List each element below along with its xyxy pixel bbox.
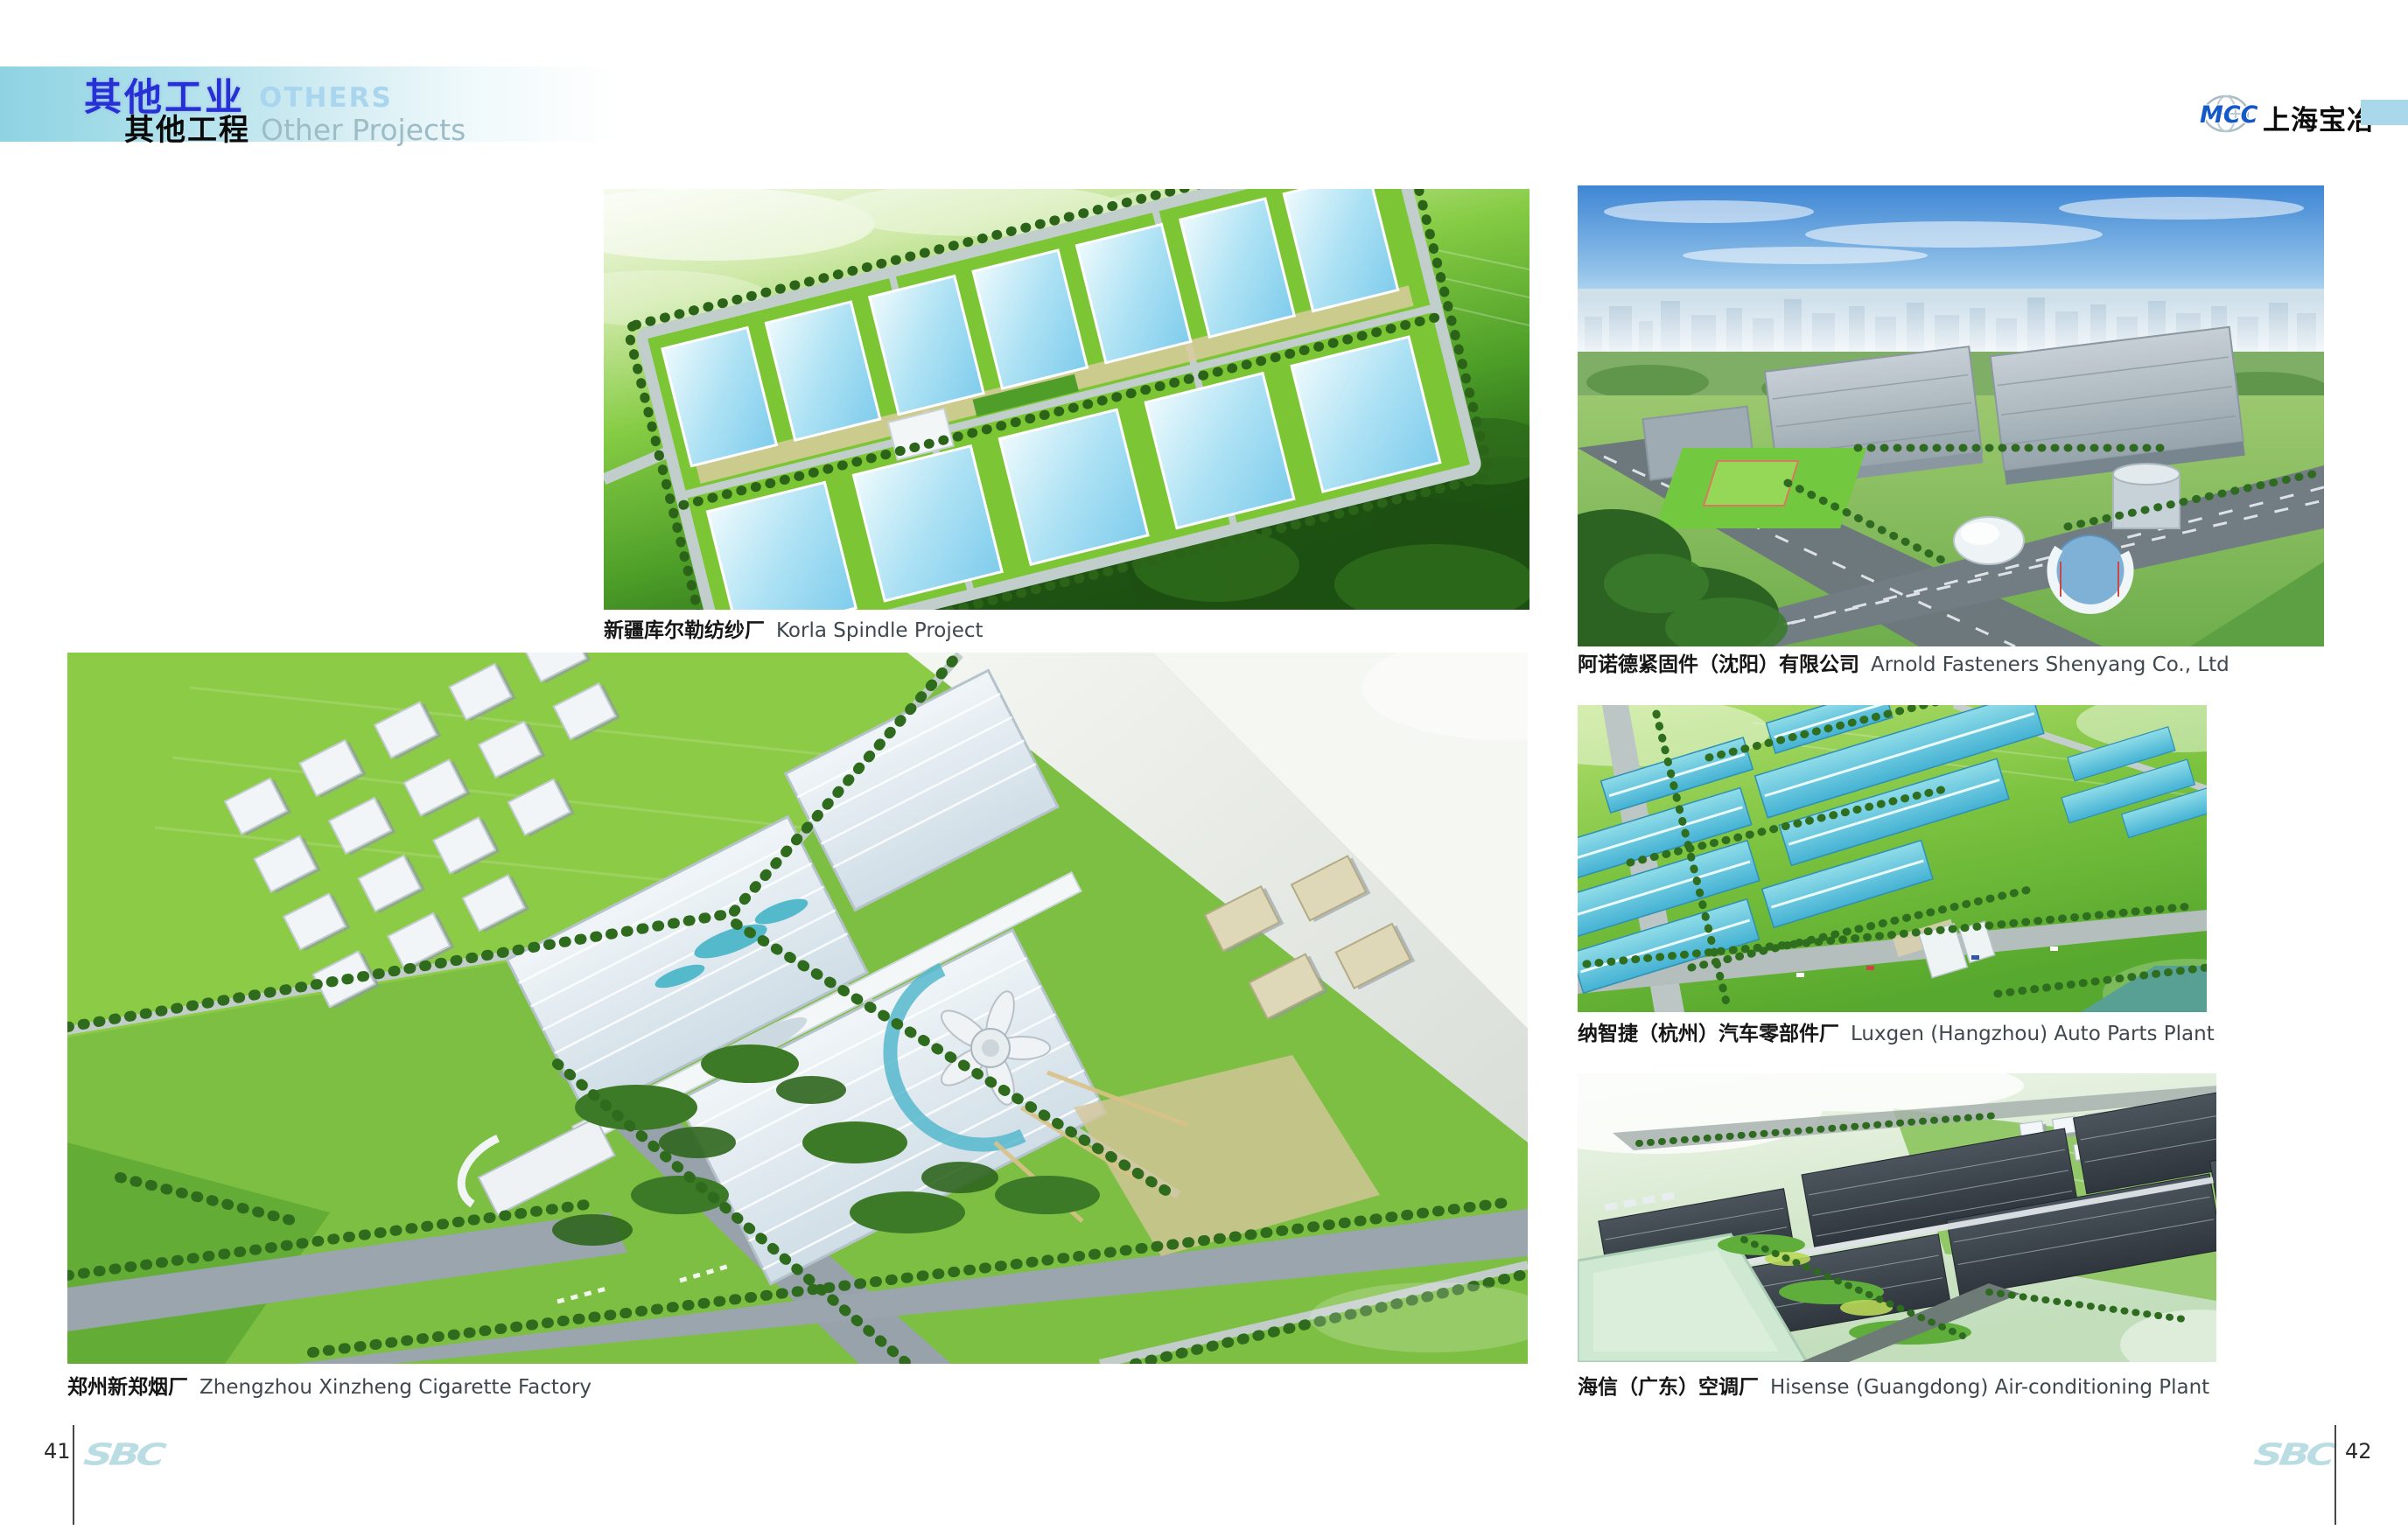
- figure-korla-spindle: [604, 189, 1529, 610]
- mcc-logo-text: MCC: [2200, 101, 2258, 129]
- caption-en: Hisense (Guangdong) Air-conditioning Pla…: [1770, 1376, 2209, 1399]
- footer-rule-right: [2334, 1425, 2336, 1525]
- page-number-right: 42: [2345, 1439, 2372, 1464]
- caption-en: Luxgen (Hangzhou) Auto Parts Plant: [1851, 1023, 2215, 1045]
- caption-en: Arnold Fasteners Shenyang Co., Ltd: [1871, 653, 2229, 676]
- figure-zhengzhou-cigarette: [67, 653, 1528, 1364]
- sbc-logo-left: SBC: [81, 1436, 164, 1471]
- arnold-aerial-render: [1578, 185, 2324, 646]
- figure-arnold-fasteners: [1578, 185, 2324, 646]
- caption-luxgen: 纳智捷（杭州）汽车零部件厂Luxgen (Hangzhou) Auto Part…: [1578, 1022, 2215, 1046]
- footer-rule-left: [73, 1425, 74, 1525]
- luxgen-aerial-render: [1578, 705, 2207, 1012]
- hisense-aerial-render: [1578, 1073, 2216, 1362]
- caption-arnold: 阿诺德紧固件（沈阳）有限公司Arnold Fasteners Shenyang …: [1578, 653, 2229, 677]
- korla-aerial-render: [604, 189, 1529, 610]
- caption-zh: 海信（广东）空调厂: [1578, 1376, 1759, 1399]
- figure-hisense-aircon: [1578, 1073, 2216, 1362]
- figure-luxgen-auto-parts: [1578, 705, 2207, 1012]
- caption-zh: 郑州新郑烟厂: [67, 1376, 188, 1399]
- section-subtitle-zh: 其他工程: [124, 113, 250, 148]
- page-number-left: 41: [44, 1439, 71, 1464]
- caption-zh: 纳智捷（杭州）汽车零部件厂: [1578, 1023, 1839, 1045]
- caption-en: Zhengzhou Xinzheng Cigarette Factory: [199, 1376, 591, 1399]
- brand-accent-bar: [2361, 100, 2408, 125]
- caption-zh: 阿诺德紧固件（沈阳）有限公司: [1578, 653, 1859, 676]
- caption-en: Korla Spindle Project: [776, 619, 983, 642]
- sbc-logo-right: SBC: [2251, 1436, 2334, 1471]
- section-subtitle-en: Other Projects: [261, 113, 465, 147]
- brochure-spread: 其他工业OTHERS 其他工程Other Projects MCC 上海宝冶: [0, 0, 2408, 1530]
- caption-korla: 新疆库尔勒纺纱厂Korla Spindle Project: [604, 618, 983, 643]
- caption-zhengzhou: 郑州新郑烟厂Zhengzhou Xinzheng Cigarette Facto…: [67, 1375, 591, 1400]
- company-name: 上海宝冶: [2263, 98, 2375, 137]
- zhengzhou-aerial-render: [67, 653, 1528, 1364]
- caption-hisense: 海信（广东）空调厂Hisense (Guangdong) Air-conditi…: [1578, 1375, 2209, 1400]
- caption-zh: 新疆库尔勒纺纱厂: [604, 619, 765, 642]
- section-subtitle-row: 其他工程Other Projects: [124, 106, 465, 149]
